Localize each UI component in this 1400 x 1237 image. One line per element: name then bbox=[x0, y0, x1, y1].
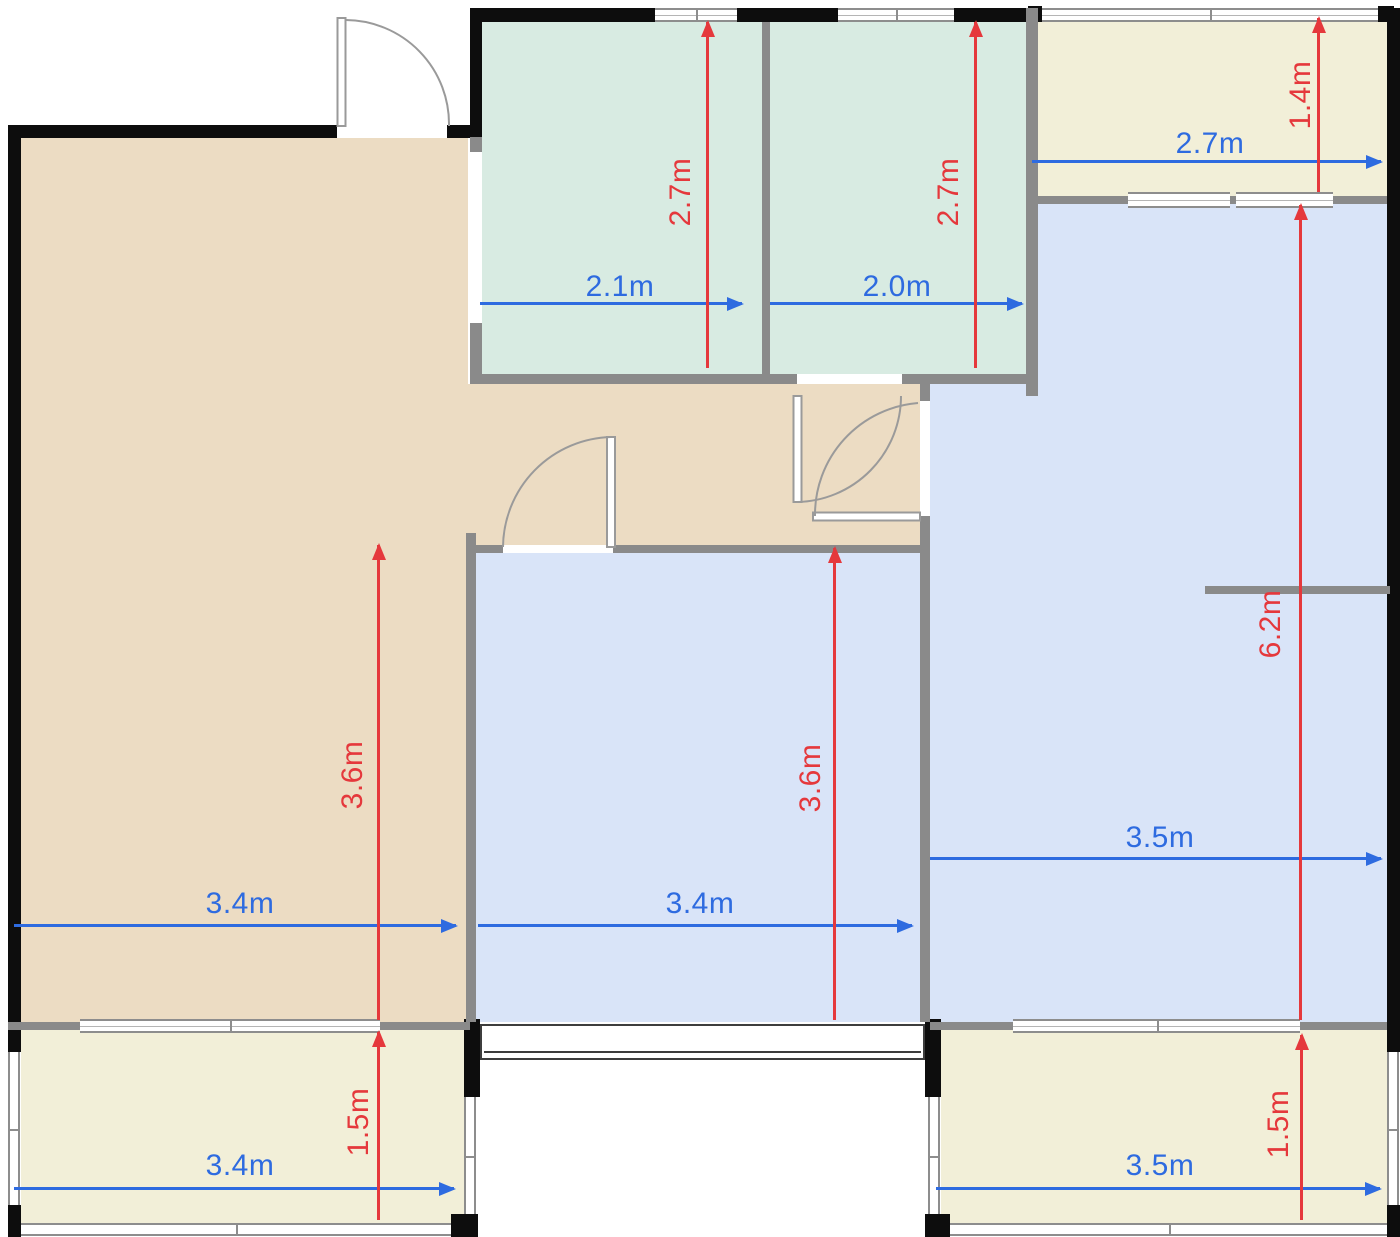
entry-door-leaf bbox=[338, 18, 346, 126]
dim-label-bathroom-right-width: 2.0m bbox=[863, 270, 932, 304]
bedroom-right-door-arc bbox=[815, 403, 918, 516]
dim-arrow-bathroom-right-height bbox=[974, 22, 977, 368]
dim-label-bedroom-right-width: 3.5m bbox=[1126, 821, 1195, 855]
dim-arrow-bathroom-left-height bbox=[706, 22, 709, 368]
dim-label-living-height: 3.6m bbox=[336, 741, 370, 810]
dim-arrow-living-height bbox=[377, 545, 380, 1020]
bedroom-right-door-leaf bbox=[813, 513, 920, 521]
dim-label-bathroom-left-height: 2.7m bbox=[664, 158, 698, 227]
dim-arrow-bedroom-middle-width bbox=[478, 924, 912, 927]
bedroom-middle-door-arc bbox=[503, 437, 611, 547]
dim-arrow-balcony-bl-height bbox=[377, 1032, 380, 1220]
dim-label-balcony-br-width: 3.5m bbox=[1126, 1149, 1195, 1183]
dim-arrow-living-width bbox=[14, 924, 456, 927]
floor-plan-canvas: 2.1m 2.0m 2.7m 3.5m 3.4m 3.4m 3.4m 3.5m … bbox=[0, 0, 1400, 1237]
dim-label-bathroom-left-width: 2.1m bbox=[586, 270, 655, 304]
dim-label-living-width: 3.4m bbox=[206, 887, 275, 921]
dim-label-balcony-bl-height: 1.5m bbox=[342, 1088, 376, 1157]
entry-door-arc bbox=[346, 20, 449, 126]
dim-label-balcony-bl-width: 3.4m bbox=[206, 1149, 275, 1183]
dim-arrow-balcony-bl-width bbox=[14, 1187, 454, 1190]
dim-arrow-bedroom-right-width bbox=[930, 857, 1381, 860]
door-symbols bbox=[0, 0, 1400, 1237]
dim-arrow-bedroom-right-height bbox=[1299, 205, 1302, 1020]
dim-arrow-balcony-br-width bbox=[936, 1187, 1380, 1190]
dim-label-balcony-tr-width: 2.7m bbox=[1176, 127, 1245, 161]
dim-label-bathroom-right-height: 2.7m bbox=[932, 158, 966, 227]
dim-label-bedroom-middle-width: 3.4m bbox=[666, 887, 735, 921]
dim-arrow-balcony-br-height bbox=[1300, 1035, 1303, 1220]
dim-label-balcony-tr-height: 1.4m bbox=[1284, 61, 1318, 130]
dim-label-bedroom-right-height: 6.2m bbox=[1254, 590, 1288, 659]
bedroom-middle-door-leaf bbox=[607, 437, 615, 547]
dim-arrow-bedroom-middle-height bbox=[833, 548, 836, 1020]
bathroom-right-door-arc bbox=[797, 396, 901, 502]
dim-label-balcony-br-height: 1.5m bbox=[1262, 1090, 1296, 1159]
dim-label-bedroom-middle-height: 3.6m bbox=[794, 744, 828, 813]
bathroom-right-door-leaf bbox=[794, 396, 802, 502]
